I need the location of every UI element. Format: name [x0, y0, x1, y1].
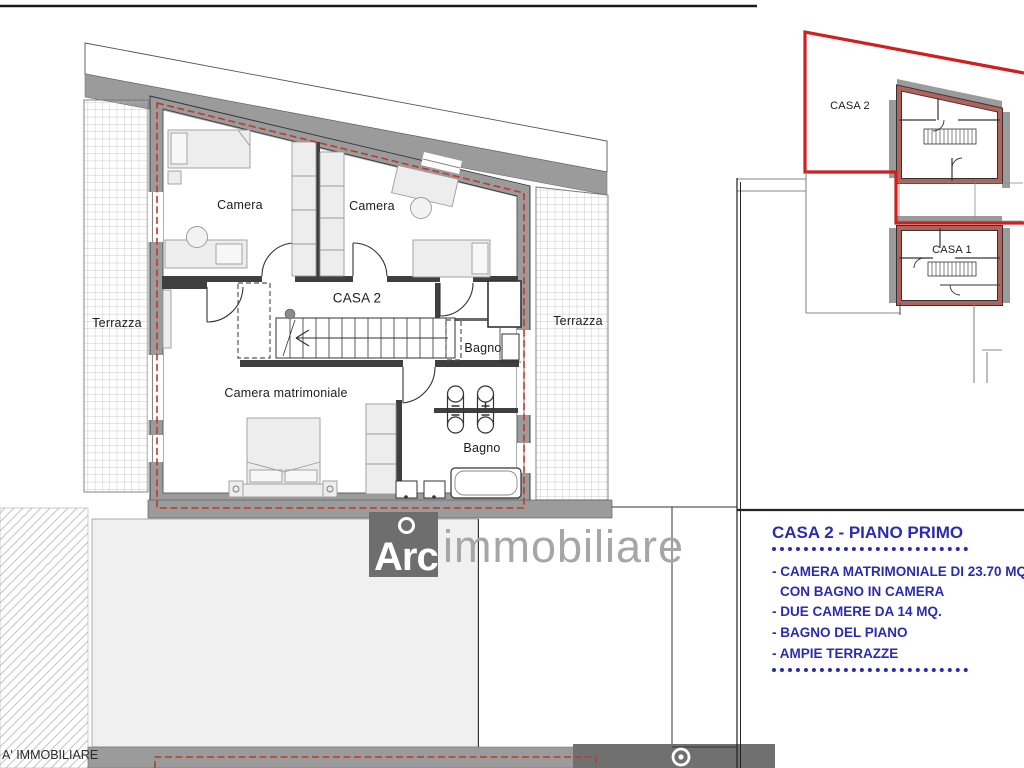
- info-title: CASA 2 - PIANO PRIMO: [772, 523, 1024, 543]
- label-terrazza-left: Terrazza: [92, 316, 142, 330]
- footer-partial-text: A' IMMOBILIARE: [2, 748, 98, 762]
- label-minimap-casa2: CASA 2: [830, 100, 870, 112]
- watermark-ring-icon: [398, 517, 415, 534]
- wardrobe-matrimoniale: [366, 404, 396, 494]
- info-panel: CASA 2 - PIANO PRIMO - CAMERA MATRIMONIA…: [772, 523, 1024, 672]
- chair-left-camera: [187, 227, 208, 248]
- feature-item: - CAMERA MATRIMONIALE DI 23.70 MQ.: [772, 564, 1024, 580]
- main-floor-plan: [84, 43, 612, 518]
- shower-cabinet: [488, 281, 521, 327]
- floor-plan-sheet: { "plan_labels": { "camera_left": "Camer…: [0, 0, 1024, 768]
- sink-upper-bagno: [502, 334, 519, 360]
- left-terrace-hatch: [84, 100, 148, 492]
- chair-right-camera: [411, 198, 432, 219]
- site-key-map: [737, 32, 1024, 383]
- minimap-casa1-unit: [899, 228, 1000, 303]
- bathtub: [451, 468, 521, 498]
- label-camera-left: Camera: [217, 198, 263, 212]
- detector-dot: [285, 309, 295, 319]
- label-terrazza-right: Terrazza: [553, 314, 603, 328]
- label-camera-right: Camera: [349, 199, 395, 213]
- label-bagno-lower: Bagno: [463, 441, 500, 455]
- feature-item: - BAGNO DEL PIANO: [772, 625, 1024, 641]
- feature-item: - AMPIE TERRAZZE: [772, 646, 1024, 662]
- watermark-brand-text: immobiliare: [443, 524, 684, 569]
- dotted-divider-bottom: [772, 668, 968, 672]
- dotted-divider-top: [772, 547, 968, 551]
- diagonal-hatch-area: [0, 508, 88, 768]
- label-casa2-unit: CASA 2: [333, 291, 381, 306]
- watermark-logo-square: Arc: [369, 512, 438, 577]
- label-camera-matrimoniale: Camera matrimoniale: [224, 386, 347, 400]
- label-minimap-casa1: CASA 1: [932, 244, 972, 256]
- label-bagno-upper: Bagno: [464, 341, 501, 355]
- watermark-logo-text: Arc: [374, 537, 438, 577]
- staircase: [276, 318, 455, 358]
- feature-item: CON BAGNO IN CAMERA: [772, 584, 1024, 600]
- right-terrace-hatch: [536, 187, 608, 500]
- feature-item: - DUE CAMERE DA 14 MQ.: [772, 604, 1024, 620]
